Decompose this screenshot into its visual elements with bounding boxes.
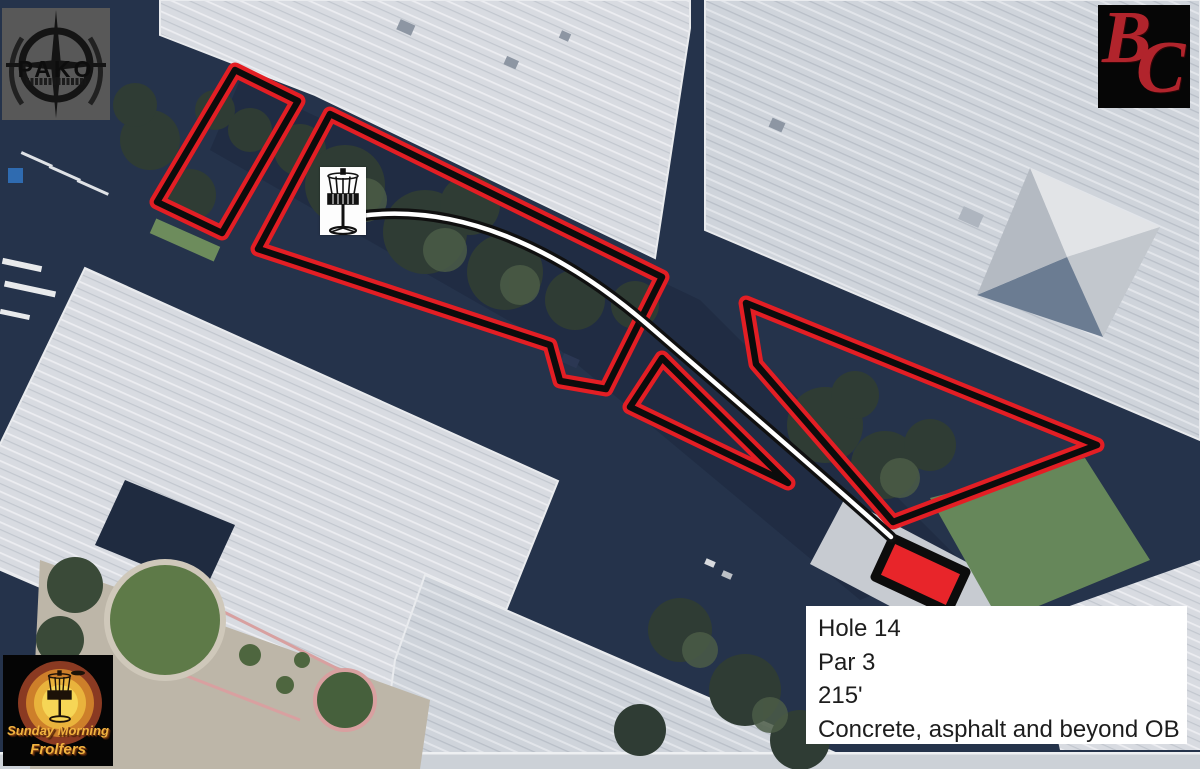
hole-distance: 215' — [818, 679, 1187, 713]
pako-logo: PAKO — [2, 8, 110, 120]
hole-info-box: Hole 14 Par 3 215' Concrete, asphalt and… — [806, 606, 1187, 744]
bc-logo: B C — [1098, 5, 1190, 108]
hole-par: Par 3 — [818, 646, 1187, 680]
bc-logo-letter-c: C — [1136, 31, 1185, 105]
sunday-morning-frolfers-logo: Sunday Morning Frolfers — [3, 655, 113, 766]
disc-golf-hole-map: PAKO B C Sunday Morning Frolfers Hole — [0, 0, 1200, 769]
disc-golf-basket-icon — [320, 167, 366, 235]
hole-ob-note: Concrete, asphalt and beyond OB — [818, 713, 1187, 747]
smf-logo-line2: Frolfers — [3, 741, 113, 758]
hole-number: Hole 14 — [818, 612, 1187, 646]
pako-logo-subtext — [26, 78, 86, 85]
smf-logo-line1: Sunday Morning — [3, 723, 113, 738]
